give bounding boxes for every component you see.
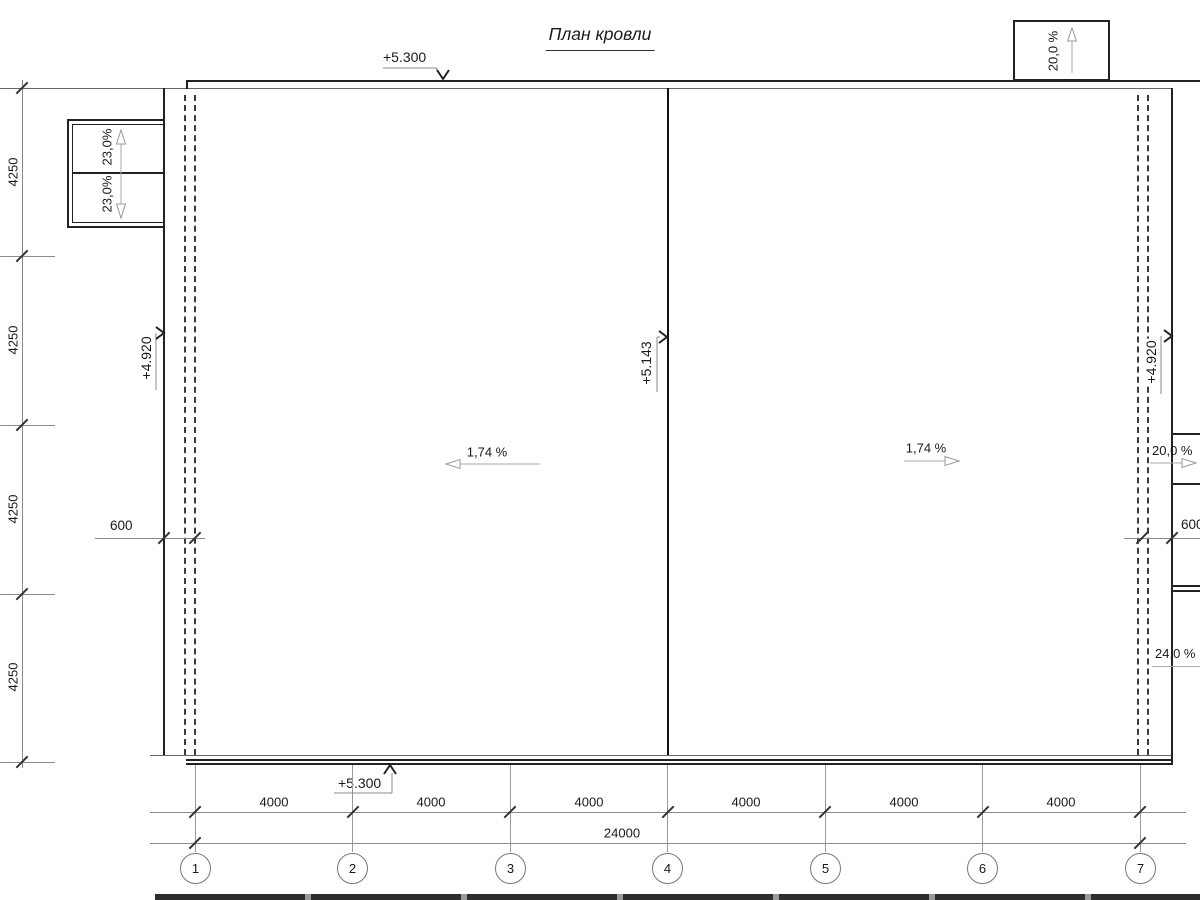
- dim-4000-label: 4000: [1047, 796, 1076, 809]
- dim-4000-label: 4000: [890, 796, 919, 809]
- left-canopy-divider: [72, 172, 164, 174]
- axis-bubble-7: 7: [1125, 853, 1156, 884]
- parapet-corner-left: [186, 80, 188, 89]
- dim-line-bottom-2: [150, 843, 1186, 844]
- roof-edge-right: [1171, 88, 1173, 765]
- elev-roof-bottom-label: +5.300: [336, 775, 383, 791]
- slope-arrow-right-icon: [1182, 459, 1196, 468]
- dim-4250-label: 4250: [7, 158, 20, 187]
- slope-main-right-label: 1,74 %: [906, 442, 946, 455]
- wall-dashed-right-outer: [1147, 95, 1149, 755]
- axis-number: 7: [1137, 861, 1144, 876]
- dim-4250-label: 4250: [7, 663, 20, 692]
- axis-number: 2: [349, 861, 356, 876]
- witness-line: [0, 762, 55, 763]
- axis-number: 3: [507, 861, 514, 876]
- dim-line-600-right: [1124, 538, 1200, 539]
- elev-right-eave-label: +4.920: [1143, 338, 1159, 385]
- dim-4250-label: 4250: [7, 326, 20, 355]
- elevation-arrow-down-icon: [437, 70, 449, 79]
- slope-arrow-right-icon: [945, 457, 959, 466]
- dim-4000-label: 4000: [417, 796, 446, 809]
- right-ramp-top-1: [1172, 585, 1200, 587]
- slope-main-left-label: 1,74 %: [467, 446, 507, 459]
- dim-line-600-left: [95, 538, 205, 539]
- axis-bubble-4: 4: [652, 853, 683, 884]
- witness-line: [0, 425, 55, 426]
- dim-24000-label: 24000: [604, 827, 640, 840]
- right-ramp-slope-label: 24,0 %: [1155, 647, 1195, 660]
- axis-bubble-5: 5: [810, 853, 841, 884]
- axis-number: 4: [664, 861, 671, 876]
- axis-bubble-6: 6: [967, 853, 998, 884]
- left-canopy-upper-slope-label: 23,0%: [101, 129, 114, 166]
- dim-4000-label: 4000: [732, 796, 761, 809]
- grid-line-4: [667, 765, 668, 852]
- drawing-title: План кровли: [546, 24, 655, 51]
- top-canopy: [1013, 20, 1110, 81]
- axis-number: 1: [192, 861, 199, 876]
- elevation-arrow-right-icon: [659, 331, 667, 343]
- dim-4000-label: 4000: [575, 796, 604, 809]
- axis-bubble-2: 2: [337, 853, 368, 884]
- elev-roof-top-label: +5.300: [383, 50, 426, 64]
- right-ramp-slope-arrow-line: [1152, 666, 1200, 667]
- grid-line-6: [982, 765, 983, 852]
- axis-bubble-3: 3: [495, 853, 526, 884]
- axis-bubble-1: 1: [180, 853, 211, 884]
- right-ramp-top-2: [1172, 590, 1200, 592]
- roof-edge-top: [0, 88, 1172, 89]
- right-canopy-bottom: [1172, 483, 1200, 485]
- dim-600-right-label: 600: [1181, 518, 1200, 532]
- parapet-line-bottom-1: [186, 759, 1172, 761]
- sheet-frame-edge: [155, 894, 1200, 900]
- top-canopy-slope-label: 20,0 %: [1047, 31, 1060, 71]
- elev-left-eave-label: +4.920: [139, 336, 153, 379]
- ridge-line: [667, 88, 669, 755]
- witness-line: [0, 256, 55, 257]
- parapet-line-bottom-2: [186, 763, 1172, 765]
- elevation-arrow-up-icon: [384, 765, 396, 774]
- axis-number: 6: [979, 861, 986, 876]
- roof-plan-sheet: План кровли 23,0% 23,0% 20,0 % 20,0 % 24…: [0, 0, 1200, 900]
- wall-dashed-right-inner: [1137, 95, 1139, 755]
- axis-number: 5: [822, 861, 829, 876]
- dim-600-left-label: 600: [110, 519, 133, 533]
- witness-line: [0, 594, 55, 595]
- grid-line-2: [352, 765, 353, 852]
- left-canopy-lower-slope-label: 23,0%: [101, 176, 114, 213]
- dim-4250-label: 4250: [7, 495, 20, 524]
- right-canopy-top: [1172, 433, 1200, 435]
- elev-ridge-label: +5.143: [639, 341, 653, 384]
- arrows-overlay: [0, 0, 1200, 900]
- wall-dashed-left-inner: [194, 95, 196, 755]
- wall-dashed-left-outer: [184, 95, 186, 755]
- right-canopy-slope-label: 20,0 %: [1152, 444, 1192, 457]
- dim-4000-label: 4000: [260, 796, 289, 809]
- roof-edge-bottom: [150, 755, 1172, 756]
- slope-arrow-left-icon: [446, 460, 460, 469]
